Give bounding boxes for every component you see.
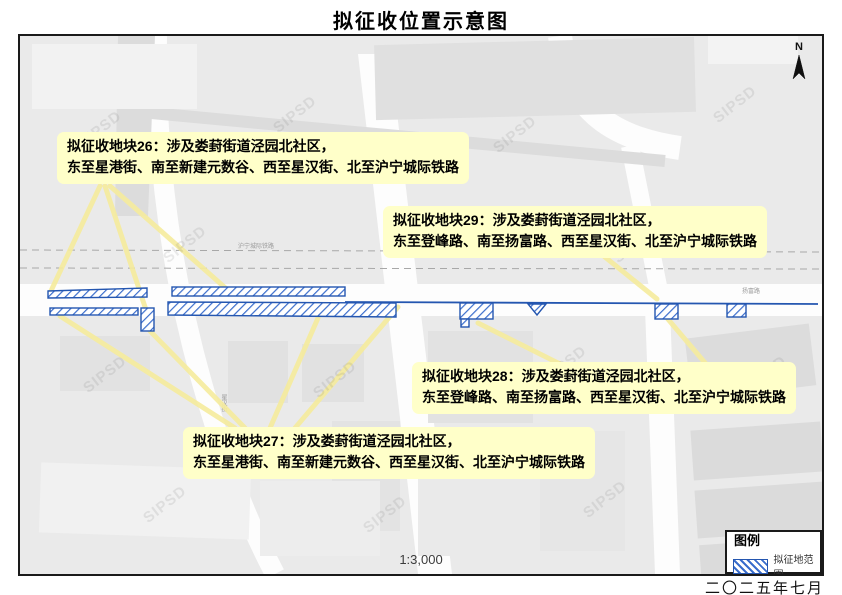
callout-plot-26-line2: 东至星港街、南至新建元数谷、西至星汉街、北至沪宁城际铁路: [67, 157, 459, 178]
acquisition-area: [727, 304, 746, 317]
callout-plot-29-line2: 东至登峰路、南至扬富路、西至星汉街、北至沪宁城际铁路: [393, 231, 757, 252]
acquisition-area: [461, 319, 469, 327]
acquisition-area: [172, 287, 345, 296]
acquisition-area: [50, 308, 138, 315]
map-scale: 1:3,000: [20, 552, 822, 567]
callout-plot-26: 拟征收地块26：涉及娄葑街道泾园北社区， 东至星港街、南至新建元数谷、西至星汉街…: [57, 132, 469, 184]
callout-plot-27-line2: 东至星港街、南至新建元数谷、西至星汉街、北至沪宁城际铁路: [193, 452, 585, 473]
north-arrow-icon: [791, 53, 807, 81]
railway-label: 沪宁城际铁路: [238, 242, 274, 250]
callout-plot-28-line2: 东至登峰路、南至扬富路、西至星汉街、北至沪宁城际铁路: [422, 387, 786, 408]
acquisition-area: [141, 308, 154, 331]
page: 拟征收位置示意图: [0, 0, 842, 595]
callout-plot-27: 拟征收地块27：涉及娄葑街道泾园北社区， 东至星港街、南至新建元数谷、西至星汉街…: [183, 427, 595, 479]
acquisition-area: [460, 303, 493, 319]
legend-title: 图例: [727, 532, 820, 548]
acquisition-area: [168, 302, 396, 317]
callout-plot-29: 拟征收地块29：涉及娄葑街道泾园北社区， 东至登峰路、南至扬富路、西至星汉街、北…: [383, 206, 767, 258]
legend-item-label: 拟征地范围: [774, 551, 820, 576]
callout-plot-29-line1: 拟征收地块29：涉及娄葑街道泾园北社区，: [393, 210, 757, 231]
map-canvas: 沪宁城际铁路 扬富路 星汉街: [20, 36, 822, 574]
south-road-label: 扬富路: [742, 287, 760, 295]
callout-plot-28: 拟征收地块28：涉及娄葑街道泾园北社区， 东至登峰路、南至扬富路、西至星汉街、北…: [412, 362, 796, 414]
acquisition-area: [655, 304, 678, 319]
callout-plot-28-line1: 拟征收地块28：涉及娄葑街道泾园北社区，: [422, 366, 786, 387]
callout-plot-27-line1: 拟征收地块27：涉及娄葑街道泾园北社区，: [193, 431, 585, 452]
north-label: N: [788, 42, 810, 53]
map-frame: 沪宁城际铁路 扬富路 星汉街: [18, 34, 824, 576]
legend-row: 拟征地范围: [727, 548, 820, 576]
acquisition-hatch-swatch: [733, 559, 768, 574]
legend: 图例 拟征地范围: [725, 530, 822, 574]
north-arrow: N: [788, 42, 810, 86]
date-label: 二〇二五年七月: [705, 577, 824, 595]
callout-plot-26-line1: 拟征收地块26：涉及娄葑街道泾园北社区，: [67, 136, 459, 157]
page-title: 拟征收位置示意图: [0, 5, 842, 34]
